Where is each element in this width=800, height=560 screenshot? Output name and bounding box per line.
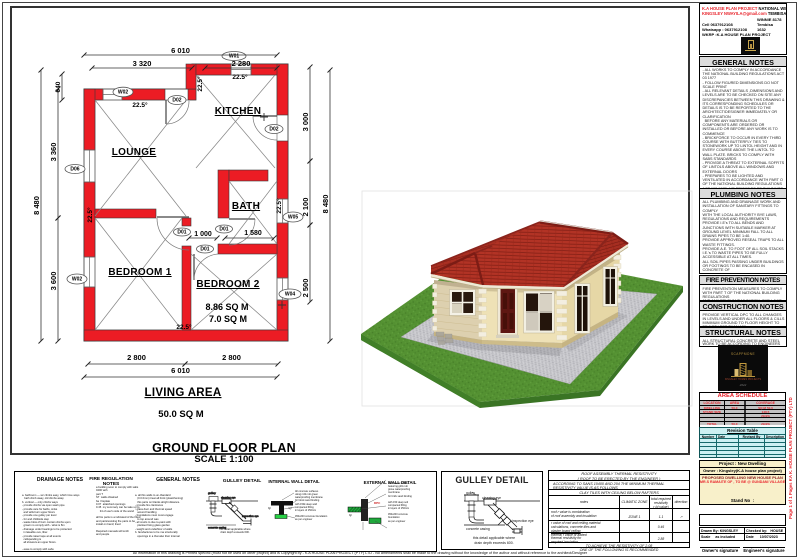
- svg-text:22.5°: 22.5°: [176, 323, 192, 331]
- svg-text:1 580: 1 580: [244, 230, 262, 237]
- svg-text:2 800: 2 800: [222, 353, 241, 362]
- svg-text:LIVING AREA: LIVING AREA: [145, 387, 222, 399]
- svg-text:22.5°: 22.5°: [86, 207, 94, 223]
- svg-text:3 600: 3 600: [49, 272, 58, 291]
- svg-text:KITCHEN: KITCHEN: [215, 106, 262, 117]
- svg-text:50.0 SQ M: 50.0 SQ M: [158, 409, 203, 420]
- svg-text:GROUND FLOOR PLAN: GROUND FLOOR PLAN: [152, 441, 296, 455]
- svg-text:W02: W02: [72, 277, 83, 283]
- svg-text:2 100: 2 100: [301, 198, 310, 217]
- svg-text:LOUNGE: LOUNGE: [112, 147, 157, 158]
- svg-text:2 800: 2 800: [127, 353, 146, 362]
- svg-text:D02: D02: [269, 127, 278, 133]
- svg-text:1 000: 1 000: [194, 231, 212, 238]
- svg-text:640: 640: [55, 81, 62, 92]
- svg-text:6 010: 6 010: [171, 366, 190, 375]
- svg-text:22.5°: 22.5°: [196, 76, 204, 92]
- svg-text:BEDROOM 2: BEDROOM 2: [196, 279, 259, 290]
- svg-text:D01: D01: [177, 230, 186, 236]
- svg-text:D01: D01: [200, 247, 209, 253]
- svg-text:2 280: 2 280: [232, 59, 251, 68]
- svg-text:22.5°: 22.5°: [132, 101, 148, 109]
- svg-text:2 500: 2 500: [301, 279, 310, 298]
- svg-text:6 010: 6 010: [171, 46, 190, 55]
- svg-text:8 480: 8 480: [32, 196, 41, 215]
- svg-text:BATH: BATH: [232, 201, 260, 212]
- svg-text:W02: W02: [118, 90, 129, 96]
- svg-text:D02: D02: [172, 98, 181, 104]
- svg-text:3 320: 3 320: [133, 59, 152, 68]
- svg-text:22.5°: 22.5°: [275, 198, 283, 214]
- svg-text:3 000: 3 000: [301, 113, 310, 132]
- svg-text:W05: W05: [288, 215, 299, 221]
- svg-text:BEDROOM 1: BEDROOM 1: [108, 267, 171, 278]
- svg-text:8 480: 8 480: [321, 195, 330, 214]
- svg-text:3 360: 3 360: [49, 143, 58, 162]
- svg-text:8.86 SQ M: 8.86 SQ M: [205, 302, 248, 312]
- svg-text:7.0 SQ M: 7.0 SQ M: [209, 314, 247, 324]
- svg-text:D01: D01: [219, 227, 228, 233]
- svg-text:22.5°: 22.5°: [232, 73, 248, 81]
- svg-text:W04: W04: [285, 292, 296, 298]
- svg-text:D06: D06: [70, 167, 79, 173]
